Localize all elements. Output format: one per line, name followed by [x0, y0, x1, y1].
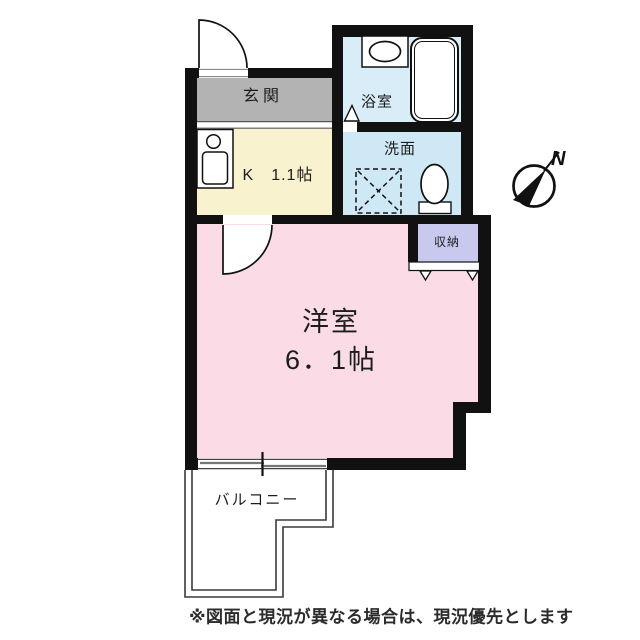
- kitchen-door-opening: [223, 215, 272, 224]
- wall-bath-right: [461, 25, 473, 224]
- bathroom-label: 浴室: [361, 95, 393, 110]
- wall-left: [185, 68, 197, 470]
- compass-icon: N: [513, 148, 566, 207]
- storage-label: 収納: [434, 236, 460, 248]
- wall-entry-left: [185, 68, 199, 78]
- balcony-outer-line: [185, 470, 333, 597]
- bathroom-sink-icon: [362, 36, 408, 67]
- wall-genkan-bath-divider: [332, 25, 343, 224]
- floor-plan: N 玄関 浴室 K 1.1帖 洗面 収納 洋室 6．1帖 バルコニー ※図面と現…: [0, 0, 640, 640]
- wall-bottom-right: [327, 458, 466, 470]
- balcony-label: バルコニー: [215, 493, 300, 508]
- wall-bottom-left: [185, 458, 198, 470]
- wall-mid-right: [272, 215, 491, 224]
- balcony-outline: [185, 470, 333, 597]
- compass-north-label: N: [551, 148, 566, 170]
- wall-storage-left: [408, 224, 418, 262]
- main-room-size: 6．1帖: [285, 341, 377, 379]
- kitchen-burner-icon: [207, 135, 221, 149]
- bathtub-icon: [411, 38, 458, 122]
- wall-bath-top: [332, 25, 473, 37]
- main-room-name: 洋室: [285, 303, 377, 341]
- balcony-inner-line: [192, 470, 326, 590]
- wall-right-upper: [478, 215, 491, 413]
- closet-door-icon: [409, 262, 480, 271]
- wall-entry-right: [248, 68, 343, 78]
- genkan-label: 玄関: [243, 89, 283, 105]
- bathroom-door-opening: [343, 122, 357, 132]
- washroom-label: 洗面: [384, 142, 416, 157]
- kitchen-label: K 1.1帖: [243, 168, 314, 184]
- wall-bath-washroom-divider: [357, 122, 461, 132]
- disclaimer-text: ※図面と現況が異なる場合は、現況優先とします: [189, 603, 574, 628]
- kitchen-basin-icon: [203, 152, 228, 184]
- wall-mid-left: [185, 215, 223, 224]
- kitchen-sink-icon: [197, 130, 233, 189]
- main-room-label: 洋室 6．1帖: [285, 303, 377, 379]
